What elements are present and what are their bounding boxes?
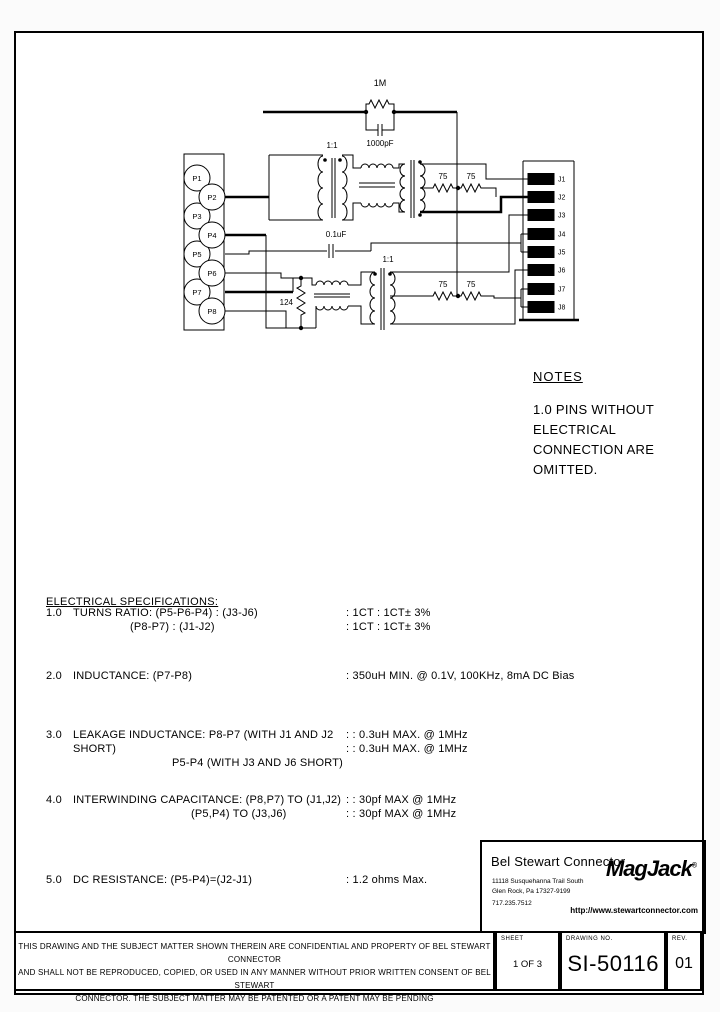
jack-pin-labels: J1 J2 J3 J4 J5 J6 J7 J8	[558, 177, 566, 312]
jack-connector	[519, 161, 579, 320]
pin-label-p5: P5	[192, 250, 201, 259]
notes-body: 1.0 PINS WITHOUT ELECTRICAL CONNECTION A…	[533, 400, 719, 480]
resistor-1m-label: 1M	[374, 78, 387, 88]
title-block: Bel Stewart Connector 11118 Susquehanna …	[480, 840, 706, 934]
footer-strip: THIS DRAWING AND THE SUBJECT MATTER SHOW…	[14, 931, 702, 991]
top-termination-resistors	[420, 184, 496, 197]
top-choke	[359, 164, 405, 212]
resistor-75-label: 75	[467, 280, 476, 289]
resistor-75-label: 75	[439, 172, 448, 181]
pin-label-j7: J7	[558, 287, 566, 294]
transformer-bottom-ratio-label: 1:1	[382, 255, 394, 264]
pin-label-p4: P4	[207, 231, 216, 240]
resistor-75-label: 75	[439, 280, 448, 289]
sheet-box: SHEET 1 OF 3	[495, 931, 560, 991]
spec-value: : : 0.3uH MAX. @ 1MHz	[346, 728, 686, 742]
cap-1000pf-label: 1000pF	[366, 139, 393, 148]
resistor-124-label: 124	[280, 298, 294, 307]
disclaimer-line-3: CONNECTOR. THE SUBJECT MATTER MAY BE PAT…	[16, 992, 493, 1005]
sheet-value: 1 OF 3	[497, 959, 558, 970]
drawing-number-box: DRAWING NO. SI-50116	[560, 931, 666, 991]
sheet-label: SHEET	[501, 936, 524, 942]
transformer-top-ratio-label: 1:1	[326, 141, 338, 150]
pin-label-p7: P7	[192, 288, 201, 297]
circuit-schematic: 1M 1000pF 1:1 1:1 0.1uF 124 75 75 75 75 …	[31, 68, 719, 368]
notes-section: NOTES 1.0 PINS WITHOUT ELECTRICAL CONNEC…	[533, 369, 719, 480]
drawing-sheet: 1M 1000pF 1:1 1:1 0.1uF 124 75 75 75 75 …	[14, 31, 704, 995]
isolation-transformer-top	[400, 160, 528, 218]
spec-number: 4.0	[46, 793, 62, 807]
bottom-choke	[314, 272, 375, 328]
pin-label-j6: J6	[558, 268, 566, 275]
spec-text: P5-P4 (WITH J3 AND J6 SHORT)	[73, 756, 363, 770]
notes-line-2: CONNECTION ARE OMITTED.	[533, 440, 719, 480]
pin-label-j8: J8	[558, 305, 566, 312]
spec-number: 3.0	[46, 728, 62, 742]
spec-text: INDUCTANCE: (P7-P8)	[73, 669, 363, 683]
pin-label-p2: P2	[207, 193, 216, 202]
registered-mark: ®	[692, 863, 696, 870]
drawing-number-label: DRAWING NO.	[566, 936, 613, 942]
spec-number: 1.0	[46, 606, 62, 620]
pin-label-p8: P8	[207, 307, 216, 316]
pin-label-p1: P1	[192, 174, 201, 183]
magjack-logo: MagJack®	[606, 856, 696, 882]
bottom-transformer	[370, 215, 528, 330]
spec-text: TURNS RATIO: (P5-P6-P4) : (J3-J6)	[73, 606, 363, 620]
notes-title: NOTES	[533, 369, 719, 384]
company-url: http://www.stewartconnector.com	[570, 906, 698, 915]
spec-value: : : 30pf MAX @ 1MHz	[346, 793, 686, 807]
pin-label-j4: J4	[558, 232, 566, 239]
magjack-logo-text: MagJack	[606, 856, 692, 881]
spec-value: : 1CT : 1CT± 3%	[346, 620, 686, 634]
spec-text: (P8-P7) : (J1-J2)	[73, 620, 363, 634]
company-phone: 717.235.7512	[492, 900, 532, 907]
termination-network	[263, 100, 457, 296]
bottom-termination-resistors	[390, 292, 521, 300]
spec-value: : : 0.3uH MAX. @ 1MHz	[346, 742, 686, 756]
notes-line-1: 1.0 PINS WITHOUT ELECTRICAL	[533, 400, 719, 440]
pin-label-p6: P6	[207, 269, 216, 278]
spec-text: DC RESISTANCE: (P5-P4)=(J2-J1)	[73, 873, 363, 887]
revision-label: REV.	[672, 936, 687, 942]
mid-capacitor	[329, 243, 521, 258]
pin-label-p3: P3	[192, 212, 201, 221]
pin-label-j2: J2	[558, 195, 566, 202]
spec-value: : 350uH MIN. @ 0.1V, 100KHz, 8mA DC Bias	[346, 669, 686, 683]
spec-text: INTERWINDING CAPACITANCE: (P8,P7) TO (J1…	[73, 793, 363, 807]
plug-connector	[184, 154, 225, 330]
spec-value: : 1CT : 1CT± 3%	[346, 606, 686, 620]
revision-value: 01	[668, 955, 700, 973]
company-address-line1: 11118 Susquehanna Trail South	[492, 878, 583, 885]
spec-text: (P5,P4) TO (J3,J6)	[73, 807, 363, 821]
drawing-number-value: SI-50116	[567, 951, 659, 977]
spec-value: : : 30pf MAX @ 1MHz	[346, 807, 686, 821]
disclaimer-line-2: AND SHALL NOT BE REPRODUCED, COPIED, OR …	[16, 966, 493, 992]
spec-number: 2.0	[46, 669, 62, 683]
disclaimer-box: THIS DRAWING AND THE SUBJECT MATTER SHOW…	[14, 931, 495, 991]
spec-number: 5.0	[46, 873, 62, 887]
top-transformer	[269, 155, 361, 220]
spec-text: LEAKAGE INDUCTANCE: P8-P7 (WITH J1 AND J…	[73, 728, 363, 756]
disclaimer-line-1: THIS DRAWING AND THE SUBJECT MATTER SHOW…	[16, 940, 493, 966]
pin-label-j5: J5	[558, 250, 566, 257]
pin-label-j1: J1	[558, 177, 566, 184]
plug-wires	[225, 197, 327, 328]
cap-01uf-label: 0.1uF	[326, 230, 347, 239]
pin-label-j3: J3	[558, 213, 566, 220]
company-address-line2: Glen Rock, Pa 17327-9199	[492, 888, 570, 895]
resistor-75-label: 75	[467, 172, 476, 181]
revision-box: REV. 01	[666, 931, 702, 991]
